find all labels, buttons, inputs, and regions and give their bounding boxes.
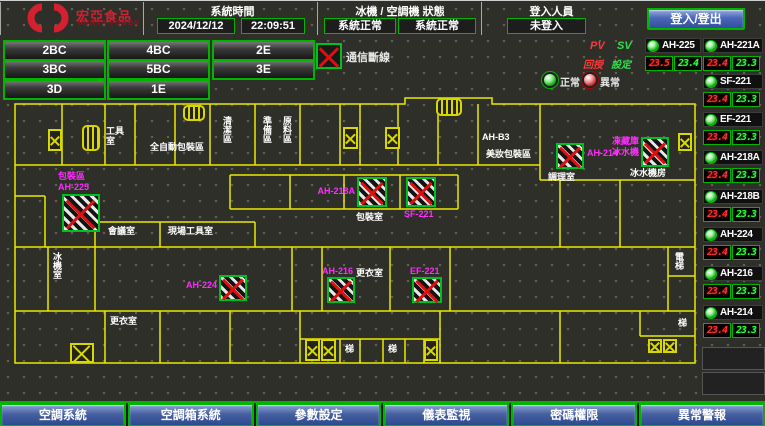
- ahu-offline-icon[interactable]: [412, 277, 442, 303]
- unit-led-icon: [705, 307, 717, 319]
- shaft-icon: [385, 127, 400, 149]
- room-label: 冰機室: [52, 252, 62, 279]
- system-time-value: 22:09:51: [241, 18, 305, 34]
- floor-button-3E[interactable]: 3E: [212, 59, 315, 80]
- sv-header: SV: [617, 40, 632, 52]
- unit-AH-221A[interactable]: AH-221A: [703, 38, 763, 53]
- comm-offline-icon: [316, 43, 342, 69]
- header-divider: [143, 2, 144, 35]
- ahu-offline-icon[interactable]: [556, 143, 584, 169]
- room-label: 電梯: [674, 252, 684, 270]
- nav-button-6[interactable]: 異常警報: [639, 403, 765, 426]
- unit-AH-218B[interactable]: AH-218B: [703, 189, 763, 204]
- shaft-icon: [48, 129, 62, 151]
- floor-button-2E[interactable]: 2E: [212, 40, 315, 61]
- nav-button-2[interactable]: 空調箱系統: [128, 403, 254, 426]
- unit-led-icon: [705, 76, 717, 88]
- login-user-label: 登入人員: [485, 3, 618, 19]
- ahu-offline-icon[interactable]: [62, 194, 100, 232]
- unit-pv-reading: 23.4: [703, 284, 731, 299]
- nav-button-3[interactable]: 參數設定: [256, 403, 382, 426]
- shaft-icon: [321, 339, 336, 361]
- ahu-map-label: 凍藏庫: [608, 136, 639, 146]
- bottom-navigation: 空調系統空調箱系統參數設定儀表監視密碼權限異常警報: [0, 401, 765, 426]
- ahu-status-value: 系統正常: [398, 18, 476, 34]
- shaft-icon: [648, 339, 662, 353]
- room-label: 原料區: [282, 116, 292, 143]
- unit-name-label: AH-218A: [720, 152, 760, 163]
- unit-pv-reading: 23.4: [703, 92, 731, 107]
- nav-button-4[interactable]: 儀表監視: [383, 403, 509, 426]
- ahu-map-label: 冰水機: [608, 147, 639, 157]
- unit-name-label: EF-221: [720, 114, 751, 125]
- unit-led-icon: [705, 152, 717, 164]
- unit-sv-reading: 23.4: [674, 56, 702, 71]
- unit-AH-218A[interactable]: AH-218A: [703, 150, 763, 165]
- unit-pv-reading: 23.4: [703, 168, 731, 183]
- ahu-offline-icon[interactable]: [406, 177, 436, 207]
- shaft-icon: [424, 339, 438, 361]
- unit-AH-224[interactable]: AH-224: [703, 227, 763, 242]
- ahu-map-label: AH-216: [322, 266, 353, 276]
- unit-name-label: AH-216: [720, 268, 753, 279]
- nav-button-5[interactable]: 密碼權限: [511, 403, 637, 426]
- shaft-icon: [70, 343, 94, 363]
- unit-led-icon: [705, 268, 717, 280]
- header-divider: [0, 2, 1, 35]
- room-label: 冰水機房: [630, 168, 666, 178]
- floor-button-3BC[interactable]: 3BC: [3, 59, 106, 80]
- unit-name-label: AH-224: [720, 229, 753, 240]
- unit-led-icon: [647, 40, 659, 52]
- room-label: 美妝包裝區: [486, 149, 531, 159]
- floor-plan-map: 工具室全自動包裝區清潔區準備區原料區AH-B3美妝包裝區調理室冰水機房會議室現場…: [0, 96, 700, 401]
- logo-subtext: HUNYA FOODS: [78, 20, 140, 27]
- unit-name-label: AH-221A: [720, 40, 760, 51]
- setpoint-label: 設定: [611, 56, 631, 71]
- ahu-offline-icon[interactable]: [327, 277, 355, 303]
- unit-sv-reading: 23.3: [732, 92, 760, 107]
- company-logo-icon: [26, 3, 72, 33]
- ahu-map-label: AH-224: [182, 280, 217, 290]
- shaft-icon: [678, 133, 692, 151]
- unit-name-label: AH-218B: [720, 191, 760, 202]
- abnormal-led-icon: [582, 72, 598, 88]
- room-label: 工具室: [106, 126, 128, 146]
- room-label: 更衣室: [110, 316, 137, 326]
- ahu-map-label: AH-218A: [315, 186, 355, 196]
- comm-offline-label: 通信斷線: [346, 49, 390, 65]
- ahu-offline-icon[interactable]: [219, 275, 247, 301]
- floor-button-4BC[interactable]: 4BC: [107, 40, 210, 61]
- room-label: 包裝室: [356, 212, 383, 222]
- unit-pv-reading: 23.4: [703, 245, 731, 260]
- room-label: 現場工具室: [168, 226, 213, 236]
- shaft-icon: [343, 127, 358, 149]
- ahu-offline-icon[interactable]: [641, 137, 669, 167]
- stairs-icon: [436, 98, 462, 116]
- room-label: 全自動包裝區: [150, 142, 204, 152]
- unit-EF-221[interactable]: EF-221: [703, 112, 763, 127]
- room-label: 梯: [678, 318, 687, 328]
- system-time-label: 系統時間: [150, 3, 315, 19]
- unit-AH-225[interactable]: AH-225: [645, 38, 701, 53]
- floor-button-5BC[interactable]: 5BC: [107, 59, 210, 80]
- login-status-value: 未登入: [507, 18, 586, 34]
- header-divider: [481, 2, 482, 35]
- ahu-map-label: EF-221: [410, 266, 440, 276]
- nav-button-1[interactable]: 空調系統: [0, 403, 126, 426]
- ahu-map-label: AH-225: [58, 182, 89, 192]
- unit-AH-216[interactable]: AH-216: [703, 266, 763, 281]
- room-label: 清潔區: [222, 116, 232, 143]
- shaft-icon: [305, 339, 320, 361]
- unit-led-icon: [705, 191, 717, 203]
- unit-sv-reading: 23.3: [732, 323, 760, 338]
- unit-sv-reading: 23.3: [732, 284, 760, 299]
- unit-pv-reading: 23.4: [703, 130, 731, 145]
- room-label: 調理室: [548, 172, 575, 182]
- pv-header: PV: [590, 40, 605, 52]
- unit-SF-221[interactable]: SF-221: [703, 74, 763, 89]
- unit-sv-reading: 23.3: [732, 130, 760, 145]
- login-logout-button[interactable]: 登入/登出: [647, 8, 745, 30]
- unit-pv-reading: 23.5: [645, 56, 673, 71]
- ahu-map-label: 包裝區: [58, 171, 85, 181]
- feedback-label: 回授: [583, 56, 603, 71]
- ahu-map-label: SF-221: [404, 209, 434, 219]
- unit-pv-reading: 23.4: [703, 56, 731, 71]
- room-label: 準備區: [262, 116, 272, 143]
- unit-sv-reading: 23.3: [732, 207, 760, 222]
- room-label: 更衣室: [356, 268, 383, 278]
- unit-sv-reading: 23.3: [732, 245, 760, 260]
- room-label: 梯: [345, 344, 354, 354]
- chiller-status-value: 系統正常: [324, 18, 396, 34]
- shaft-icon: [663, 339, 677, 353]
- unit-sv-reading: 23.3: [732, 56, 760, 71]
- normal-label: 正常: [560, 74, 580, 89]
- header-divider: [317, 2, 318, 35]
- abnormal-label: 異常: [600, 74, 620, 89]
- unit-name-label: SF-221: [720, 76, 751, 87]
- unit-pv-reading: 23.4: [703, 207, 731, 222]
- unit-led-icon: [705, 114, 717, 126]
- hmi-screen: 宏亞食品 HUNYA FOODS 系統時間 2024/12/12 22:09:5…: [0, 0, 765, 426]
- room-label: 會議室: [108, 226, 135, 236]
- unit-led-icon: [705, 229, 717, 241]
- empty-panel: [702, 347, 765, 370]
- ahu-offline-icon[interactable]: [357, 177, 387, 207]
- room-label: 梯: [388, 344, 397, 354]
- unit-pv-reading: 23.4: [703, 323, 731, 338]
- system-date-value: 2024/12/12: [157, 18, 235, 34]
- unit-name-label: AH-225: [662, 40, 695, 51]
- unit-AH-214[interactable]: AH-214: [703, 305, 763, 320]
- normal-led-icon: [542, 72, 558, 88]
- floor-button-2BC[interactable]: 2BC: [3, 40, 106, 61]
- room-label: AH-B3: [482, 132, 510, 142]
- stairs-icon: [183, 105, 205, 121]
- unit-led-icon: [705, 40, 717, 52]
- unit-sv-reading: 23.3: [732, 168, 760, 183]
- stairs-icon: [82, 125, 100, 151]
- unit-name-label: AH-214: [720, 307, 753, 318]
- empty-panel: [702, 372, 765, 395]
- machine-status-label: 冰機 / 空調機 狀態: [320, 3, 480, 19]
